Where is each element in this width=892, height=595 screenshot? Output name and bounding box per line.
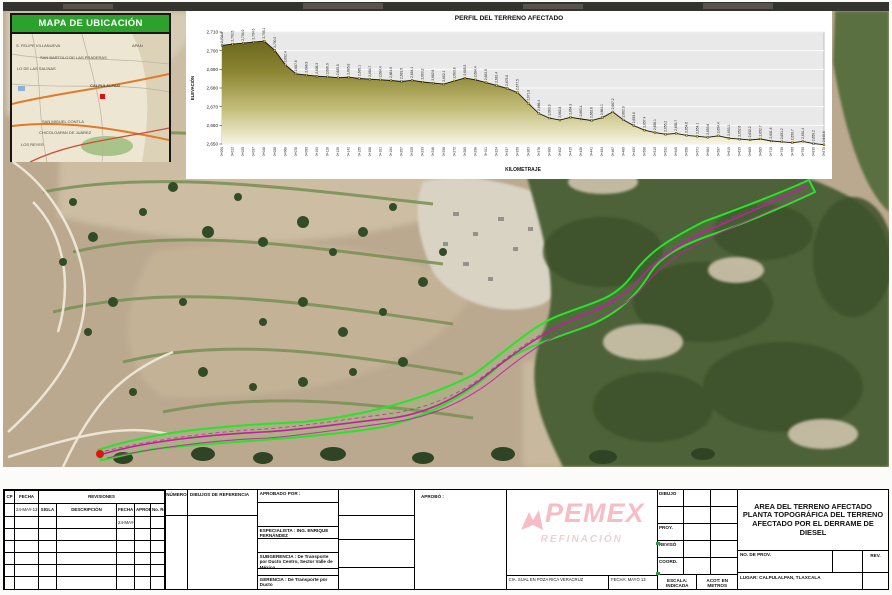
reference-drawings-column: DIBUJOS DE REFERENCIA [188, 490, 258, 589]
acot-label: ACOT: EN METROS [697, 575, 737, 589]
svg-text:2,684.7: 2,684.7 [368, 66, 372, 77]
svg-text:0+246: 0+246 [431, 147, 435, 156]
inset-place-label: LO DE LAS SALINAS [17, 67, 56, 71]
svg-text:0+220: 0+220 [410, 147, 414, 156]
svg-text:2,650: 2,650 [207, 142, 219, 147]
svg-text:0+532: 0+532 [664, 147, 668, 156]
svg-text:0+311: 0+311 [484, 147, 488, 156]
svg-text:2,654.4: 2,654.4 [716, 122, 720, 133]
drawing-title-cell: AREA DEL TERRENO AFECTADO PLANTA TOPOGRÁ… [738, 490, 888, 589]
svg-text:2,671.8: 2,671.8 [526, 90, 530, 101]
svg-text:0+545: 0+545 [674, 147, 678, 156]
svg-text:0+103: 0+103 [315, 147, 319, 156]
svg-text:2,650.7: 2,650.7 [790, 129, 794, 140]
revisions-column: CP FECHA REVISIONES 24-MAY-13 SIGLA DESC… [4, 490, 166, 589]
svg-text:2,666.4: 2,666.4 [537, 100, 541, 111]
svg-text:0+285: 0+285 [463, 147, 467, 156]
svg-text:2,687.6: 2,687.6 [294, 60, 298, 71]
reviso-label: REVISÓ [658, 541, 684, 557]
svg-text:0+324: 0+324 [495, 147, 499, 156]
pemex-eagle-icon [519, 508, 545, 534]
col-fecha: FECHA [15, 491, 39, 504]
svg-text:0+735: 0+735 [780, 147, 784, 156]
inset-place-label: APAN [132, 44, 143, 48]
green-tick-icon [656, 542, 660, 545]
svg-text:0+610: 0+610 [727, 147, 731, 156]
svg-text:2,683.2: 2,683.2 [421, 68, 425, 79]
svg-text:2,682.6: 2,682.6 [431, 69, 435, 80]
svg-text:0+025: 0+025 [241, 147, 245, 156]
svg-text:2,704.0: 2,704.0 [241, 30, 245, 41]
svg-text:0+389: 0+389 [547, 147, 551, 156]
inset-water-body [18, 86, 25, 91]
inset-place-label: CALPULALPAN [90, 84, 120, 88]
lugar-label: LUGAR: CALPULALPAN, TLAXCALA [738, 573, 863, 589]
no-de-prov-row: NO. DE PROV. REV. [738, 550, 888, 572]
svg-text:2,663.9: 2,663.9 [547, 104, 551, 115]
svg-text:0+259: 0+259 [442, 147, 446, 156]
svg-text:0+710: 0+710 [769, 147, 773, 156]
aprobo-header: APROBÓ : [415, 490, 506, 503]
location-marker [100, 94, 105, 99]
svg-text:0+635: 0+635 [738, 147, 742, 156]
escala-label: ESCALA: INDICADA [658, 575, 698, 589]
numero-header: NÚMERO [166, 490, 187, 516]
svg-text:2,660: 2,660 [207, 123, 219, 128]
col-sigla: SIGLA [39, 504, 57, 517]
svg-text:0+454: 0+454 [600, 147, 604, 156]
svg-text:2,681.4: 2,681.4 [495, 72, 499, 83]
svg-text:0+337: 0+337 [505, 147, 509, 156]
svg-text:2,655.7: 2,655.7 [674, 120, 678, 131]
dibujos-header: DIBUJOS DE REFERENCIA [188, 490, 257, 516]
svg-text:0+048: 0+048 [262, 147, 266, 156]
svg-text:2,684.4: 2,684.4 [378, 66, 382, 77]
svg-text:2,664.3: 2,664.3 [569, 104, 573, 115]
svg-text:0+519: 0+519 [653, 147, 657, 156]
rev-date: 24-MAY-13 [15, 504, 39, 517]
svg-text:2,652.2: 2,652.2 [748, 126, 752, 137]
svg-text:0+597: 0+597 [716, 147, 720, 156]
svg-text:0+233: 0+233 [421, 147, 425, 156]
svg-text:2,700.2: 2,700.2 [273, 37, 277, 48]
inset-place-label: CHICOLOAPAN DE JUÁREZ [39, 131, 91, 135]
gerencia-line: GERENCIA : De Transporte por Ducto [258, 576, 339, 589]
col-no-re: No. Re. [151, 504, 165, 517]
svg-text:0+037: 0+037 [252, 147, 256, 156]
spill-origin-marker [96, 450, 104, 458]
svg-text:0+493: 0+493 [632, 147, 636, 156]
signature-column [339, 490, 415, 589]
title-line-3: AFECTADO POR EL DERRAME DE DIESEL [739, 520, 887, 537]
svg-text:0+207: 0+207 [400, 147, 404, 156]
svg-text:0+584: 0+584 [706, 147, 710, 156]
subgerencia-line: SUBGERENCIA : De Transporte por Ducto Ce… [258, 553, 339, 569]
svg-text:0+155: 0+155 [357, 147, 361, 156]
chart-title: PERFIL DEL TERRENO AFECTADO [186, 11, 832, 24]
rev-label: REV. [863, 551, 888, 572]
svg-text:2,680: 2,680 [207, 86, 219, 91]
svg-text:2,651.6: 2,651.6 [769, 127, 773, 138]
svg-text:2,654.1: 2,654.1 [695, 123, 699, 134]
svg-text:2,682.1: 2,682.1 [442, 70, 446, 81]
inset-place-label: LOS REYES [21, 143, 44, 147]
svg-text:2,685.3: 2,685.3 [463, 64, 467, 75]
svg-text:0+685: 0+685 [759, 147, 763, 156]
svg-text:0+441: 0+441 [590, 147, 594, 156]
svg-text:2,686.3: 2,686.3 [315, 63, 319, 74]
svg-text:2,653.1: 2,653.1 [727, 125, 731, 136]
col-revisiones: REVISIONES [39, 491, 165, 504]
svg-text:0+298: 0+298 [473, 147, 477, 156]
svg-text:0+142: 0+142 [347, 147, 351, 156]
svg-text:0+363: 0+363 [526, 147, 530, 156]
svg-text:0+875: 0+875 [822, 147, 826, 156]
svg-text:0+068: 0+068 [283, 147, 287, 156]
inset-place-label: SAN BARTOLO DE LAS PRADERAS [40, 56, 107, 60]
svg-text:0+402: 0+402 [558, 147, 562, 156]
x-axis-label: KILOMETRAJE [505, 167, 542, 173]
svg-text:2,657.4: 2,657.4 [642, 117, 646, 128]
svg-text:0+571: 0+571 [695, 147, 699, 156]
svg-text:2,684.1: 2,684.1 [410, 67, 414, 78]
svg-text:2,662.9: 2,662.9 [621, 106, 625, 117]
aprobo-column: APROBÓ : [415, 490, 507, 589]
col-cp: CP [5, 491, 15, 504]
y-axis-label: ELEVACIÓN [190, 76, 195, 100]
office-cell: CIA. SUAL EN POZA RICA VERACRUZ [507, 576, 610, 589]
svg-text:0+506: 0+506 [642, 147, 646, 156]
pemex-bottom-row: CIA. SUAL EN POZA RICA VERACRUZ FECHA: M… [507, 575, 657, 589]
svg-text:0+012: 0+012 [231, 147, 235, 156]
svg-text:2,686.9: 2,686.9 [304, 61, 308, 72]
svg-text:2,710: 2,710 [207, 30, 219, 35]
svg-text:0+790: 0+790 [801, 147, 805, 156]
svg-text:2,655.2: 2,655.2 [664, 121, 668, 132]
svg-text:0+000: 0+000 [220, 147, 224, 156]
svg-text:2,683.5: 2,683.5 [400, 68, 404, 79]
svg-text:2,667.2: 2,667.2 [611, 98, 615, 109]
svg-text:2,651.2: 2,651.2 [780, 128, 784, 139]
profile-chart-panel: PERFIL DEL TERRENO AFECTADO 2,6502,6602,… [186, 11, 832, 179]
svg-text:2,656.1: 2,656.1 [653, 119, 657, 130]
col-fecha2: FECHA [117, 504, 135, 517]
svg-text:2,649.6: 2,649.6 [822, 131, 826, 142]
svg-text:0+415: 0+415 [569, 147, 573, 156]
svg-text:0+116: 0+116 [326, 147, 330, 156]
svg-text:2,651.4: 2,651.4 [801, 128, 805, 139]
svg-text:2,670: 2,670 [207, 104, 219, 109]
inset-map: S. FELIPE VILLANUEVA APAN SAN BARTOLO DE… [12, 34, 169, 162]
dibujo-label: DIBUJO [658, 490, 684, 506]
proy-label: PROY. [658, 524, 684, 540]
svg-text:2,683.8: 2,683.8 [452, 67, 456, 78]
svg-text:0+129: 0+129 [336, 147, 340, 156]
drawing-title: AREA DEL TERRENO AFECTADO PLANTA TOPOGRÁ… [738, 490, 888, 550]
location-map-inset: MAPA DE UBICACIÓN S. FELIPE VILLANUEVA A… [10, 13, 171, 162]
svg-text:0+194: 0+194 [389, 147, 393, 156]
rev-date-2: 24-MAY-13 [117, 517, 135, 529]
svg-text:2,703.5: 2,703.5 [231, 30, 235, 41]
no-de-prov-label: NO. DE PROV. [738, 551, 833, 572]
pemex-division: REFINACIÓN [507, 534, 657, 546]
svg-text:2,690: 2,690 [207, 67, 219, 72]
svg-text:0+350: 0+350 [516, 147, 520, 156]
col-aprobo: APROBÓ [135, 504, 151, 517]
svg-text:0+078: 0+078 [294, 147, 298, 156]
svg-text:2,685.8: 2,685.8 [347, 64, 351, 75]
green-tick-icon [656, 572, 660, 575]
svg-text:2,704.6: 2,704.6 [252, 28, 256, 39]
svg-text:0+272: 0+272 [452, 147, 456, 156]
svg-text:0+181: 0+181 [378, 147, 382, 156]
svg-text:2,659.8: 2,659.8 [632, 112, 636, 123]
svg-text:0+660: 0+660 [748, 147, 752, 156]
svg-text:0+376: 0+376 [537, 147, 541, 156]
svg-text:2,702.8: 2,702.8 [220, 32, 224, 43]
signatures-grid: DIBUJO PROY. REVISÓ COORD. ESCALA: INDIC… [658, 490, 738, 589]
svg-text:2,685.1: 2,685.1 [357, 65, 361, 76]
coord-label: COORD. [658, 558, 684, 574]
aprobado-por-header: APROBADO POR : [258, 490, 339, 503]
svg-text:2,654.6: 2,654.6 [685, 122, 689, 133]
svg-text:0+558: 0+558 [685, 147, 689, 156]
svg-text:2,685.5: 2,685.5 [336, 64, 340, 75]
x-tick-labels: 0+0000+0120+0250+0370+0480+0580+0680+078… [220, 147, 826, 156]
svg-text:2,653.6: 2,653.6 [706, 124, 710, 135]
fecha-cell: FECHA: MAYO 13 [609, 576, 657, 589]
svg-text:0+058: 0+058 [273, 147, 277, 156]
pemex-wordmark: PEMEX [545, 498, 645, 528]
svg-text:2,663.4: 2,663.4 [579, 105, 583, 116]
profile-chart: 2,6502,6602,6702,6802,6902,7002,7102,702… [186, 24, 832, 176]
svg-text:2,686.0: 2,686.0 [326, 63, 330, 74]
svg-text:2,684.4: 2,684.4 [473, 66, 477, 77]
svg-text:2,679.8: 2,679.8 [505, 75, 509, 86]
y-tick-labels: 2,6502,6602,6702,6802,6902,7002,710 [207, 30, 219, 147]
svg-text:2,652.6: 2,652.6 [738, 125, 742, 136]
svg-text:2,682.9: 2,682.9 [484, 69, 488, 80]
svg-text:2,650.2: 2,650.2 [811, 130, 815, 141]
svg-text:2,705.1: 2,705.1 [262, 27, 266, 38]
svg-text:2,684.0: 2,684.0 [389, 67, 393, 78]
title-block: CP FECHA REVISIONES 24-MAY-13 SIGLA DESC… [3, 489, 889, 590]
numero-column: NÚMERO [166, 490, 188, 589]
svg-text:2,652.7: 2,652.7 [759, 125, 763, 136]
svg-text:0+480: 0+480 [621, 147, 625, 156]
inset-place-label: S. FELIPE VILLANUEVA [16, 44, 60, 48]
especialista-line: ESPECIALISTA : ING. ENRIQUE FERNÁNDEZ [258, 527, 339, 539]
inset-place-label: SAN MIGUEL CONTLA [42, 120, 84, 124]
pemex-watermark: PEMEX REFINACIÓN [507, 498, 657, 560]
revisions-table: CP FECHA REVISIONES 24-MAY-13 SIGLA DESC… [4, 490, 165, 590]
svg-text:2,700: 2,700 [207, 48, 219, 53]
svg-text:0+467: 0+467 [611, 147, 615, 156]
svg-text:2,692.4: 2,692.4 [283, 51, 287, 62]
svg-text:2,677.5: 2,677.5 [516, 79, 520, 90]
inset-title: MAPA DE UBICACIÓN [12, 15, 169, 34]
svg-text:0+428: 0+428 [579, 147, 583, 156]
svg-text:0+090: 0+090 [304, 147, 308, 156]
svg-text:0+830: 0+830 [811, 147, 815, 156]
svg-text:2,662.6: 2,662.6 [590, 107, 594, 118]
svg-text:2,662.8: 2,662.8 [558, 106, 562, 117]
lugar-row: LUGAR: CALPULALPAN, TLAXCALA [738, 572, 888, 589]
svg-text:2,664.1: 2,664.1 [600, 104, 604, 115]
col-descripcion: DESCRIPCIÓN [57, 504, 117, 517]
pemex-logo-cell: PEMEX REFINACIÓN CIA. SUAL EN POZA RICA … [507, 490, 658, 589]
svg-text:0+760: 0+760 [790, 147, 794, 156]
approved-by-column: APROBADO POR : ESPECIALISTA : ING. ENRIQ… [258, 490, 340, 589]
svg-text:0+168: 0+168 [368, 147, 372, 156]
